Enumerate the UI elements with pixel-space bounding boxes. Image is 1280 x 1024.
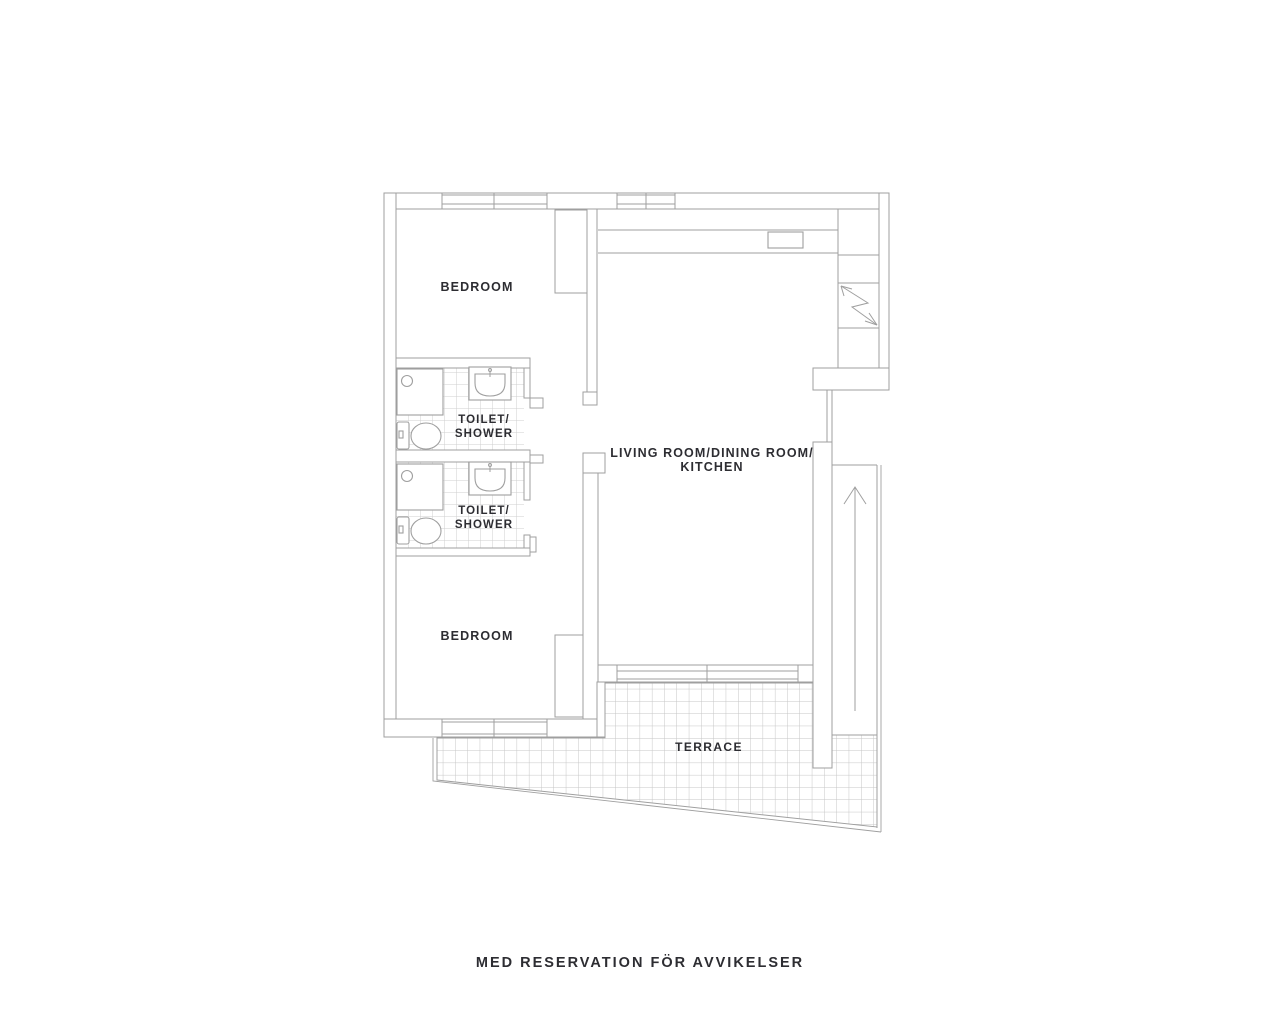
terrace-label: TERRACE xyxy=(675,740,743,754)
direction-arrow-icon xyxy=(844,487,866,711)
sink-icon xyxy=(469,462,511,495)
shower-drain-icon xyxy=(402,376,413,387)
wardrobes xyxy=(555,210,587,717)
shower-drain-icon xyxy=(402,471,413,482)
sink-icon xyxy=(469,367,511,400)
toilet-shower-bottom-label-line2: SHOWER xyxy=(455,519,513,531)
toilet-shower-top-label-line2: SHOWER xyxy=(455,428,513,440)
toilet-icon xyxy=(397,422,441,449)
bedroom-top-label: BEDROOM xyxy=(441,280,514,294)
floor-plan-drawing: BEDROOM BEDROOM TOILET/ SHOWER TOILET/ S… xyxy=(0,0,1280,1024)
toilet-icon xyxy=(397,517,441,544)
wardrobe-bedroom-bottom xyxy=(555,635,583,717)
floor-plan-page: BEDROOM BEDROOM TOILET/ SHOWER TOILET/ S… xyxy=(0,0,1280,1024)
toilet-shower-bottom-label-line1: TOILET/ xyxy=(458,505,510,517)
kitchen-hob-icon xyxy=(768,232,803,248)
disclaimer-text: MED RESERVATION FÖR AVVIKELSER xyxy=(476,954,804,971)
toilet-shower-top-label-line1: TOILET/ xyxy=(458,414,510,426)
living-room-label-line1: LIVING ROOM/DINING ROOM/ xyxy=(610,446,813,460)
living-room-label-line2: KITCHEN xyxy=(680,460,743,474)
shower-icon xyxy=(397,369,443,415)
zigzag-arrow-icon xyxy=(841,286,877,325)
window-bedroom-bottom xyxy=(442,719,547,737)
kitchen-counter xyxy=(598,209,879,368)
wardrobe-bedroom-top xyxy=(555,210,587,293)
shower-icon xyxy=(397,464,443,510)
bedroom-bottom-label: BEDROOM xyxy=(441,629,514,643)
